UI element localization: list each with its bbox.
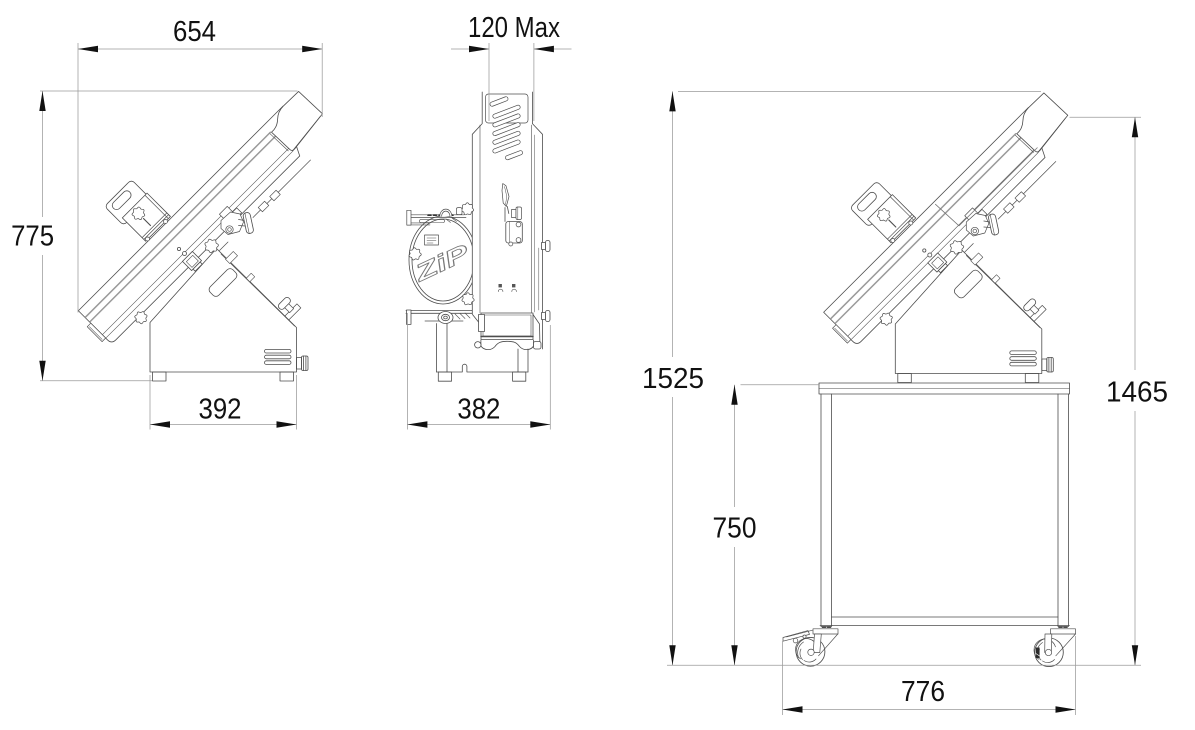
svg-text:382: 382 <box>457 394 500 426</box>
svg-text:1525: 1525 <box>642 363 704 395</box>
svg-text:392: 392 <box>199 394 242 426</box>
svg-text:120 Max: 120 Max <box>468 12 560 44</box>
svg-text:776: 776 <box>901 676 945 708</box>
svg-text:1465: 1465 <box>1106 377 1168 409</box>
svg-text:654: 654 <box>173 16 216 48</box>
svg-text:750: 750 <box>713 513 757 545</box>
svg-text:775: 775 <box>11 221 54 253</box>
